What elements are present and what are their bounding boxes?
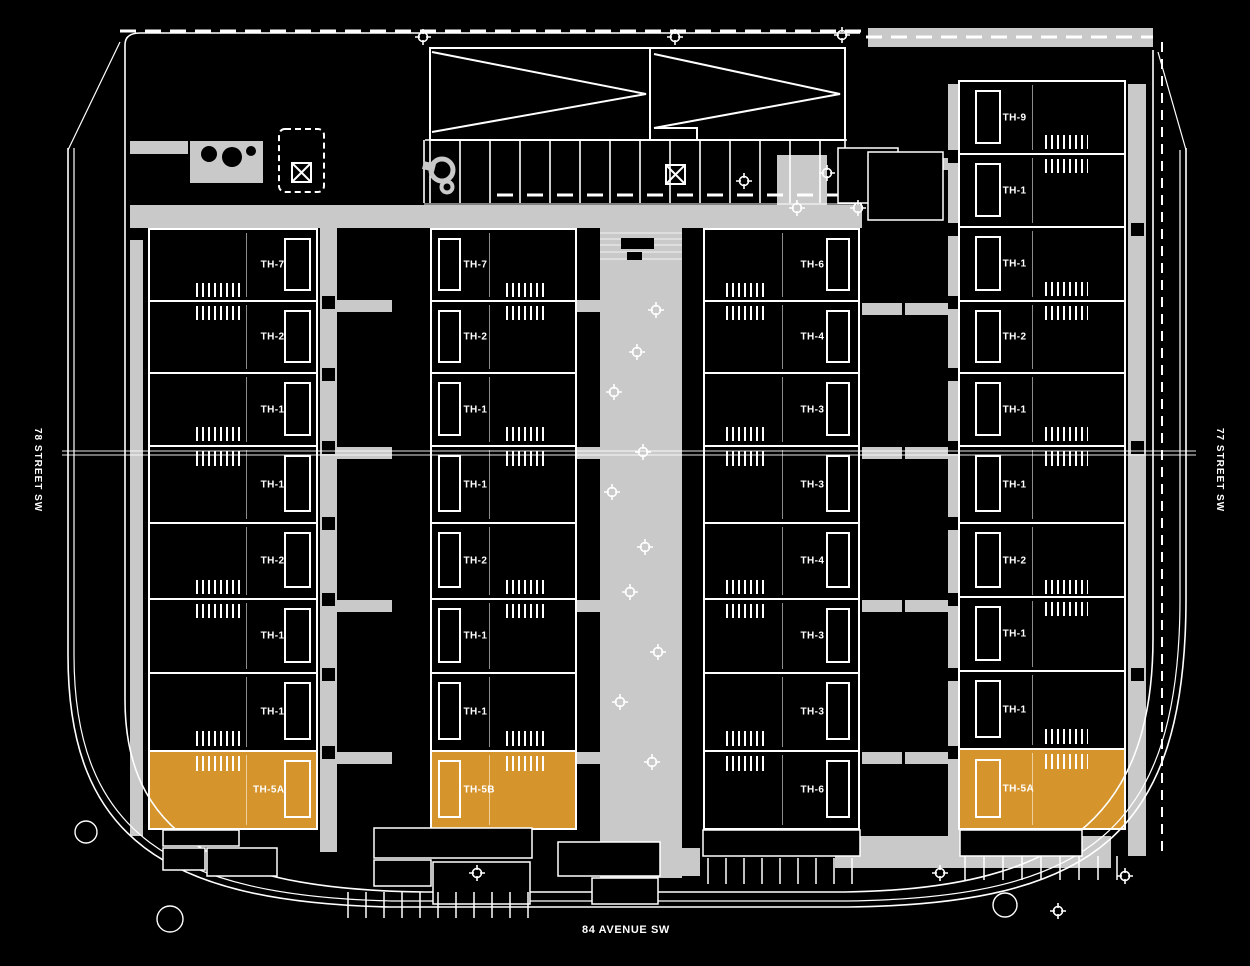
patio-outline: [975, 759, 1001, 818]
stairs-icon: [196, 604, 239, 618]
unit-label: TH-1: [463, 404, 487, 415]
patio-outline: [975, 532, 1001, 588]
bottom-walk: [835, 836, 1111, 868]
column-marker: [322, 441, 335, 454]
unit-label: TH-7: [261, 260, 285, 271]
unit-th-2: TH-2: [958, 300, 1126, 374]
unit-label: TH-1: [1003, 479, 1027, 490]
stairs-icon: [506, 756, 543, 771]
unit-th-3: TH-3: [703, 672, 860, 752]
stairs-icon: [196, 731, 239, 746]
walk-connector: [905, 303, 948, 315]
unit-label: TH-3: [801, 707, 825, 718]
building-a: TH-7 TH-2 TH-1 TH-1 TH-2 TH-1 TH-1 TH-5A: [148, 228, 318, 830]
stair-lobby: [777, 155, 827, 210]
patio-outline: [826, 310, 850, 363]
stairs-icon: [506, 306, 543, 320]
walk-connector: [862, 752, 902, 764]
stairs-icon: [1045, 754, 1088, 770]
unit-th-2: TH-2: [148, 300, 318, 374]
stairs-icon: [726, 731, 766, 746]
unit-th-6: TH-6: [703, 228, 860, 302]
stairs-icon: [506, 731, 543, 746]
walk-connector: [905, 600, 948, 612]
building-b: TH-7 TH-2 TH-1 TH-1 TH-2 TH-1 TH-1 TH-5B: [430, 228, 577, 830]
street-label-right: 77 STREET SW: [1214, 428, 1225, 512]
walk-connector: [905, 158, 948, 170]
walk-connector: [577, 300, 600, 312]
unit-th-1: TH-1: [958, 226, 1126, 302]
stairs-icon: [1045, 135, 1088, 149]
stairs-icon: [726, 604, 766, 618]
stairs-icon: [726, 283, 766, 297]
patio-outline: [438, 682, 461, 740]
unit-label: TH-1: [1003, 185, 1027, 196]
walk-connector: [905, 752, 948, 764]
unit-th-1: TH-1: [958, 596, 1126, 672]
unit-th-1: TH-1: [430, 372, 577, 447]
stairs-icon: [196, 756, 239, 771]
unit-th-7: TH-7: [148, 228, 318, 302]
patio-outline: [975, 382, 1001, 436]
unit-label: TH-1: [1003, 259, 1027, 270]
unit-label: TH-3: [801, 631, 825, 642]
stairs-icon: [506, 580, 543, 595]
patio-outline: [975, 680, 1001, 738]
unit-th-5a[interactable]: TH-5A: [148, 750, 318, 830]
unit-th-1: TH-1: [958, 372, 1126, 447]
walk-connector: [905, 447, 948, 459]
column-marker: [322, 368, 335, 381]
unit-th-3: TH-3: [703, 372, 860, 447]
patio-outline: [975, 90, 1001, 144]
walk-connector: [577, 752, 600, 764]
street-label-bottom: 84 AVENUE SW: [582, 924, 670, 936]
unit-label: TH-1: [1003, 629, 1027, 640]
patio-outline: [975, 455, 1001, 512]
stairs-icon: [1045, 282, 1088, 296]
unit-label: TH-1: [261, 631, 285, 642]
circle-icon: [222, 147, 242, 167]
walk-connector: [862, 303, 902, 315]
unit-th-2: TH-2: [958, 522, 1126, 600]
unit-th-4: TH-4: [703, 300, 860, 374]
unit-th-5a[interactable]: TH-5A: [958, 748, 1126, 830]
transformer-pad-icon: [279, 129, 685, 192]
stairs-icon: [1045, 159, 1088, 173]
unit-th-1: TH-1: [148, 672, 318, 752]
stairs-icon: [1045, 427, 1088, 441]
unit-th-9: TH-9: [958, 80, 1126, 155]
patio-outline: [438, 382, 461, 436]
column-marker: [322, 593, 335, 606]
unit-th-1: TH-1: [148, 598, 318, 674]
patio-outline: [284, 238, 311, 291]
rear-lane: [868, 28, 1153, 47]
patio-outline: [438, 455, 461, 512]
unit-label: TH-2: [463, 332, 487, 343]
unit-label: TH-7: [463, 260, 487, 271]
patio-outline: [284, 608, 311, 663]
walk-connector: [577, 600, 600, 612]
patio-outline: [438, 760, 461, 818]
garbage-enclosure: [190, 141, 263, 183]
unit-label: TH-1: [463, 631, 487, 642]
stairs-icon: [726, 756, 766, 771]
unit-label: TH-2: [261, 332, 285, 343]
stairs-icon: [1045, 580, 1088, 595]
patio-outline: [826, 238, 850, 291]
patio-outline: [826, 382, 850, 436]
walkway: [130, 240, 143, 836]
unit-th-3: TH-3: [703, 445, 860, 524]
unit-label: TH-3: [801, 404, 825, 415]
stairs-icon: [726, 451, 766, 466]
stairs-icon: [1045, 602, 1088, 616]
column-marker: [322, 746, 335, 759]
unit-label: TH-5A: [253, 785, 284, 796]
unit-label: TH-4: [801, 332, 825, 343]
unit-th-1: TH-1: [430, 672, 577, 752]
stairs-icon: [196, 283, 239, 297]
patio-outline: [284, 760, 311, 818]
stairs-icon: [506, 283, 543, 297]
unit-label: TH-4: [801, 556, 825, 567]
stairs-icon: [726, 427, 766, 441]
patio-outline: [284, 455, 311, 512]
column-marker: [322, 517, 335, 530]
column-marker: [1131, 441, 1144, 454]
column-marker: [1131, 223, 1144, 236]
walk-connector: [862, 600, 902, 612]
walk-connector: [577, 447, 600, 459]
stairs-icon: [196, 306, 239, 320]
stairs-icon: [196, 451, 239, 466]
circle-icon: [201, 146, 217, 162]
patio-outline: [438, 310, 461, 363]
patio-outline: [438, 532, 461, 588]
stairs-icon: [506, 604, 543, 618]
walkway: [1128, 84, 1146, 856]
stairs-icon: [506, 427, 543, 441]
patio-outline: [975, 606, 1001, 661]
unit-th-7: TH-7: [430, 228, 577, 302]
unit-th-2: TH-2: [148, 522, 318, 600]
stairs-icon: [1045, 451, 1088, 466]
unit-th-1: TH-1: [148, 372, 318, 447]
unit-th-1: TH-1: [148, 445, 318, 524]
unit-label: TH-1: [463, 479, 487, 490]
drive-aisle: [130, 205, 862, 228]
walk-connector: [337, 447, 392, 459]
unit-label: TH-1: [1003, 705, 1027, 716]
patio-outline: [284, 682, 311, 740]
patio-outline: [284, 382, 311, 436]
unit-label: TH-1: [463, 707, 487, 718]
stairs-icon: [196, 580, 239, 595]
stairs-icon: [1045, 729, 1088, 744]
unit-th-2: TH-2: [430, 300, 577, 374]
courtyard-apron: [560, 848, 700, 876]
building-d: TH-9 TH-1 TH-1 TH-2 TH-1 TH-1 TH-2 TH-1 …: [958, 80, 1126, 830]
unit-th-1: TH-1: [958, 670, 1126, 750]
patio-outline: [975, 236, 1001, 291]
unit-th-6: TH-6: [703, 750, 860, 830]
patio-outline: [438, 238, 461, 291]
building-c: TH-6 TH-4 TH-3 TH-3 TH-4 TH-3 TH-3 TH-6: [703, 228, 860, 830]
unit-th-4: TH-4: [703, 522, 860, 600]
unit-th-2: TH-2: [430, 522, 577, 600]
unit-th-1: TH-1: [430, 598, 577, 674]
unit-label: TH-1: [261, 404, 285, 415]
street-label-left: 78 STREET SW: [32, 428, 43, 512]
patio-outline: [975, 163, 1001, 217]
unit-th-3: TH-3: [703, 598, 860, 674]
patio-outline: [438, 608, 461, 663]
walk-connector: [337, 300, 392, 312]
unit-label: TH-1: [261, 707, 285, 718]
walk-connector: [337, 752, 392, 764]
stairs-icon: [726, 580, 766, 595]
unit-th-1: TH-1: [430, 445, 577, 524]
courtyard-path: [600, 228, 682, 878]
column-marker: [322, 668, 335, 681]
stairs-icon: [196, 427, 239, 441]
patio-outline: [826, 532, 850, 588]
stairs-icon: [506, 451, 543, 466]
unit-label: TH-6: [801, 785, 825, 796]
unit-label: TH-5A: [1003, 784, 1034, 795]
unit-th-1: TH-1: [958, 445, 1126, 524]
unit-label: TH-9: [1003, 112, 1027, 123]
site-plan: TH-7 TH-2 TH-1 TH-1 TH-2 TH-1 TH-1 TH-5A…: [0, 0, 1250, 966]
walk-pad: [130, 141, 188, 154]
unit-label: TH-3: [801, 479, 825, 490]
unit-label: TH-6: [801, 260, 825, 271]
unit-th-5b[interactable]: TH-5B: [430, 750, 577, 830]
unit-label: TH-2: [1003, 332, 1027, 343]
patio-outline: [975, 310, 1001, 363]
unit-label: TH-1: [261, 479, 285, 490]
column-marker: [1131, 668, 1144, 681]
unit-label: TH-2: [463, 556, 487, 567]
unit-label: TH-2: [1003, 556, 1027, 567]
unit-th-1: TH-1: [958, 153, 1126, 228]
unit-label: TH-5B: [463, 785, 494, 796]
patio-outline: [284, 532, 311, 588]
hook-icon: [423, 159, 453, 193]
patio-outline: [826, 760, 850, 818]
circle-icon: [246, 146, 256, 156]
patio-outline: [826, 608, 850, 663]
walk-connector: [862, 447, 902, 459]
patio-outline: [826, 455, 850, 512]
unit-label: TH-2: [261, 556, 285, 567]
unit-label: TH-1: [1003, 404, 1027, 415]
patio-outline: [284, 310, 311, 363]
stairs-icon: [1045, 306, 1088, 320]
stairs-icon: [726, 306, 766, 320]
column-marker: [322, 296, 335, 309]
walk-connector: [337, 600, 392, 612]
patio-outline: [826, 682, 850, 740]
